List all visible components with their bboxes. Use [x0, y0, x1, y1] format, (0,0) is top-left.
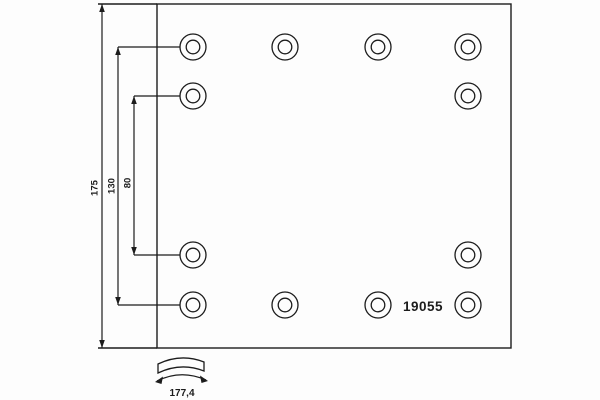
- part-number-label: 19055: [403, 299, 443, 314]
- dimension-label-80: 80: [123, 178, 134, 189]
- dimension-label-175: 175: [90, 179, 101, 196]
- brake-lining-technical-drawing: 1751308019055177,4: [0, 0, 600, 400]
- dimension-label-130: 130: [107, 178, 118, 194]
- arc-width-label: 177,4: [169, 388, 194, 399]
- drawing-background: [0, 0, 600, 400]
- drawing-surface: 1751308019055177,4: [0, 0, 600, 400]
